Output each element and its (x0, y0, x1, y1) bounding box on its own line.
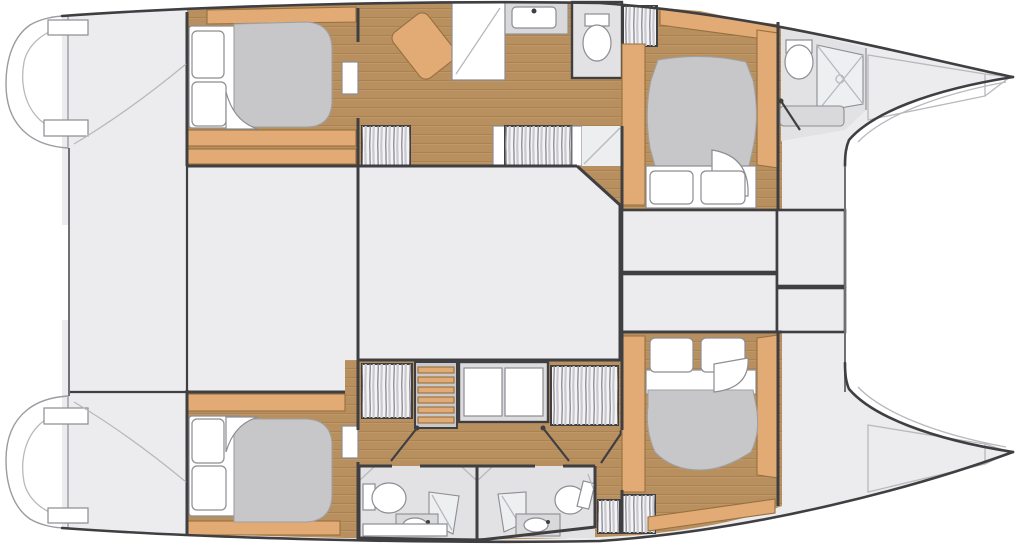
mattress (647, 390, 757, 470)
shelf-unit (493, 126, 505, 166)
pillow (650, 171, 693, 204)
starboard-bathroom-aft (359, 466, 477, 539)
side-table (342, 426, 358, 458)
catamaran-floor-plan (0, 0, 1015, 544)
mattress (234, 22, 332, 127)
hanging-clothes (551, 366, 618, 425)
faucet (546, 520, 550, 524)
cabinet-door (505, 368, 543, 416)
floor-plan-canvas (0, 0, 1015, 544)
swim-step (44, 408, 88, 424)
side-shelf (187, 149, 356, 164)
starboard-small-lockers (598, 495, 655, 533)
pillow (192, 82, 226, 126)
mattress (234, 419, 332, 522)
door-hinge (415, 426, 420, 431)
bath-step (363, 524, 447, 536)
hanging-clothes (362, 364, 412, 418)
toilet (372, 483, 406, 513)
side-shelf (757, 30, 778, 168)
starboard-bathroom-forward (477, 466, 596, 538)
compartment (622, 274, 777, 332)
swim-step (48, 508, 88, 523)
headboard-shelf (207, 7, 356, 24)
pillow (192, 31, 224, 78)
door-hinge (541, 426, 546, 431)
toilet (583, 25, 611, 61)
hanging-clothes (623, 6, 657, 46)
sink-basin (524, 518, 548, 532)
toilet-tank (585, 14, 609, 26)
side-shelf (187, 521, 340, 535)
side-table (342, 62, 358, 94)
mattress (647, 56, 756, 166)
swim-step (48, 20, 88, 35)
side-shelf (622, 44, 645, 205)
headboard-shelf (187, 394, 345, 411)
companionway-ladder (415, 362, 457, 428)
compartment (622, 210, 777, 272)
compartment (777, 210, 845, 286)
hanging-clothes (505, 126, 572, 166)
pillow (701, 171, 745, 204)
compartment (777, 288, 845, 332)
shelf-unit (572, 126, 582, 166)
side-shelf (757, 335, 778, 478)
hanging-clothes (362, 126, 410, 166)
technical-compartments (622, 210, 845, 332)
swim-step (44, 120, 88, 136)
side-shelf (622, 336, 645, 492)
pillow (650, 338, 693, 372)
pillow (192, 466, 226, 510)
cabinet-door (464, 368, 502, 416)
faucet (532, 9, 537, 14)
hanging-clothes (598, 500, 620, 533)
side-shelf (187, 130, 356, 146)
pillow (192, 419, 224, 463)
shower-tray (817, 45, 863, 112)
toilet (785, 45, 813, 79)
